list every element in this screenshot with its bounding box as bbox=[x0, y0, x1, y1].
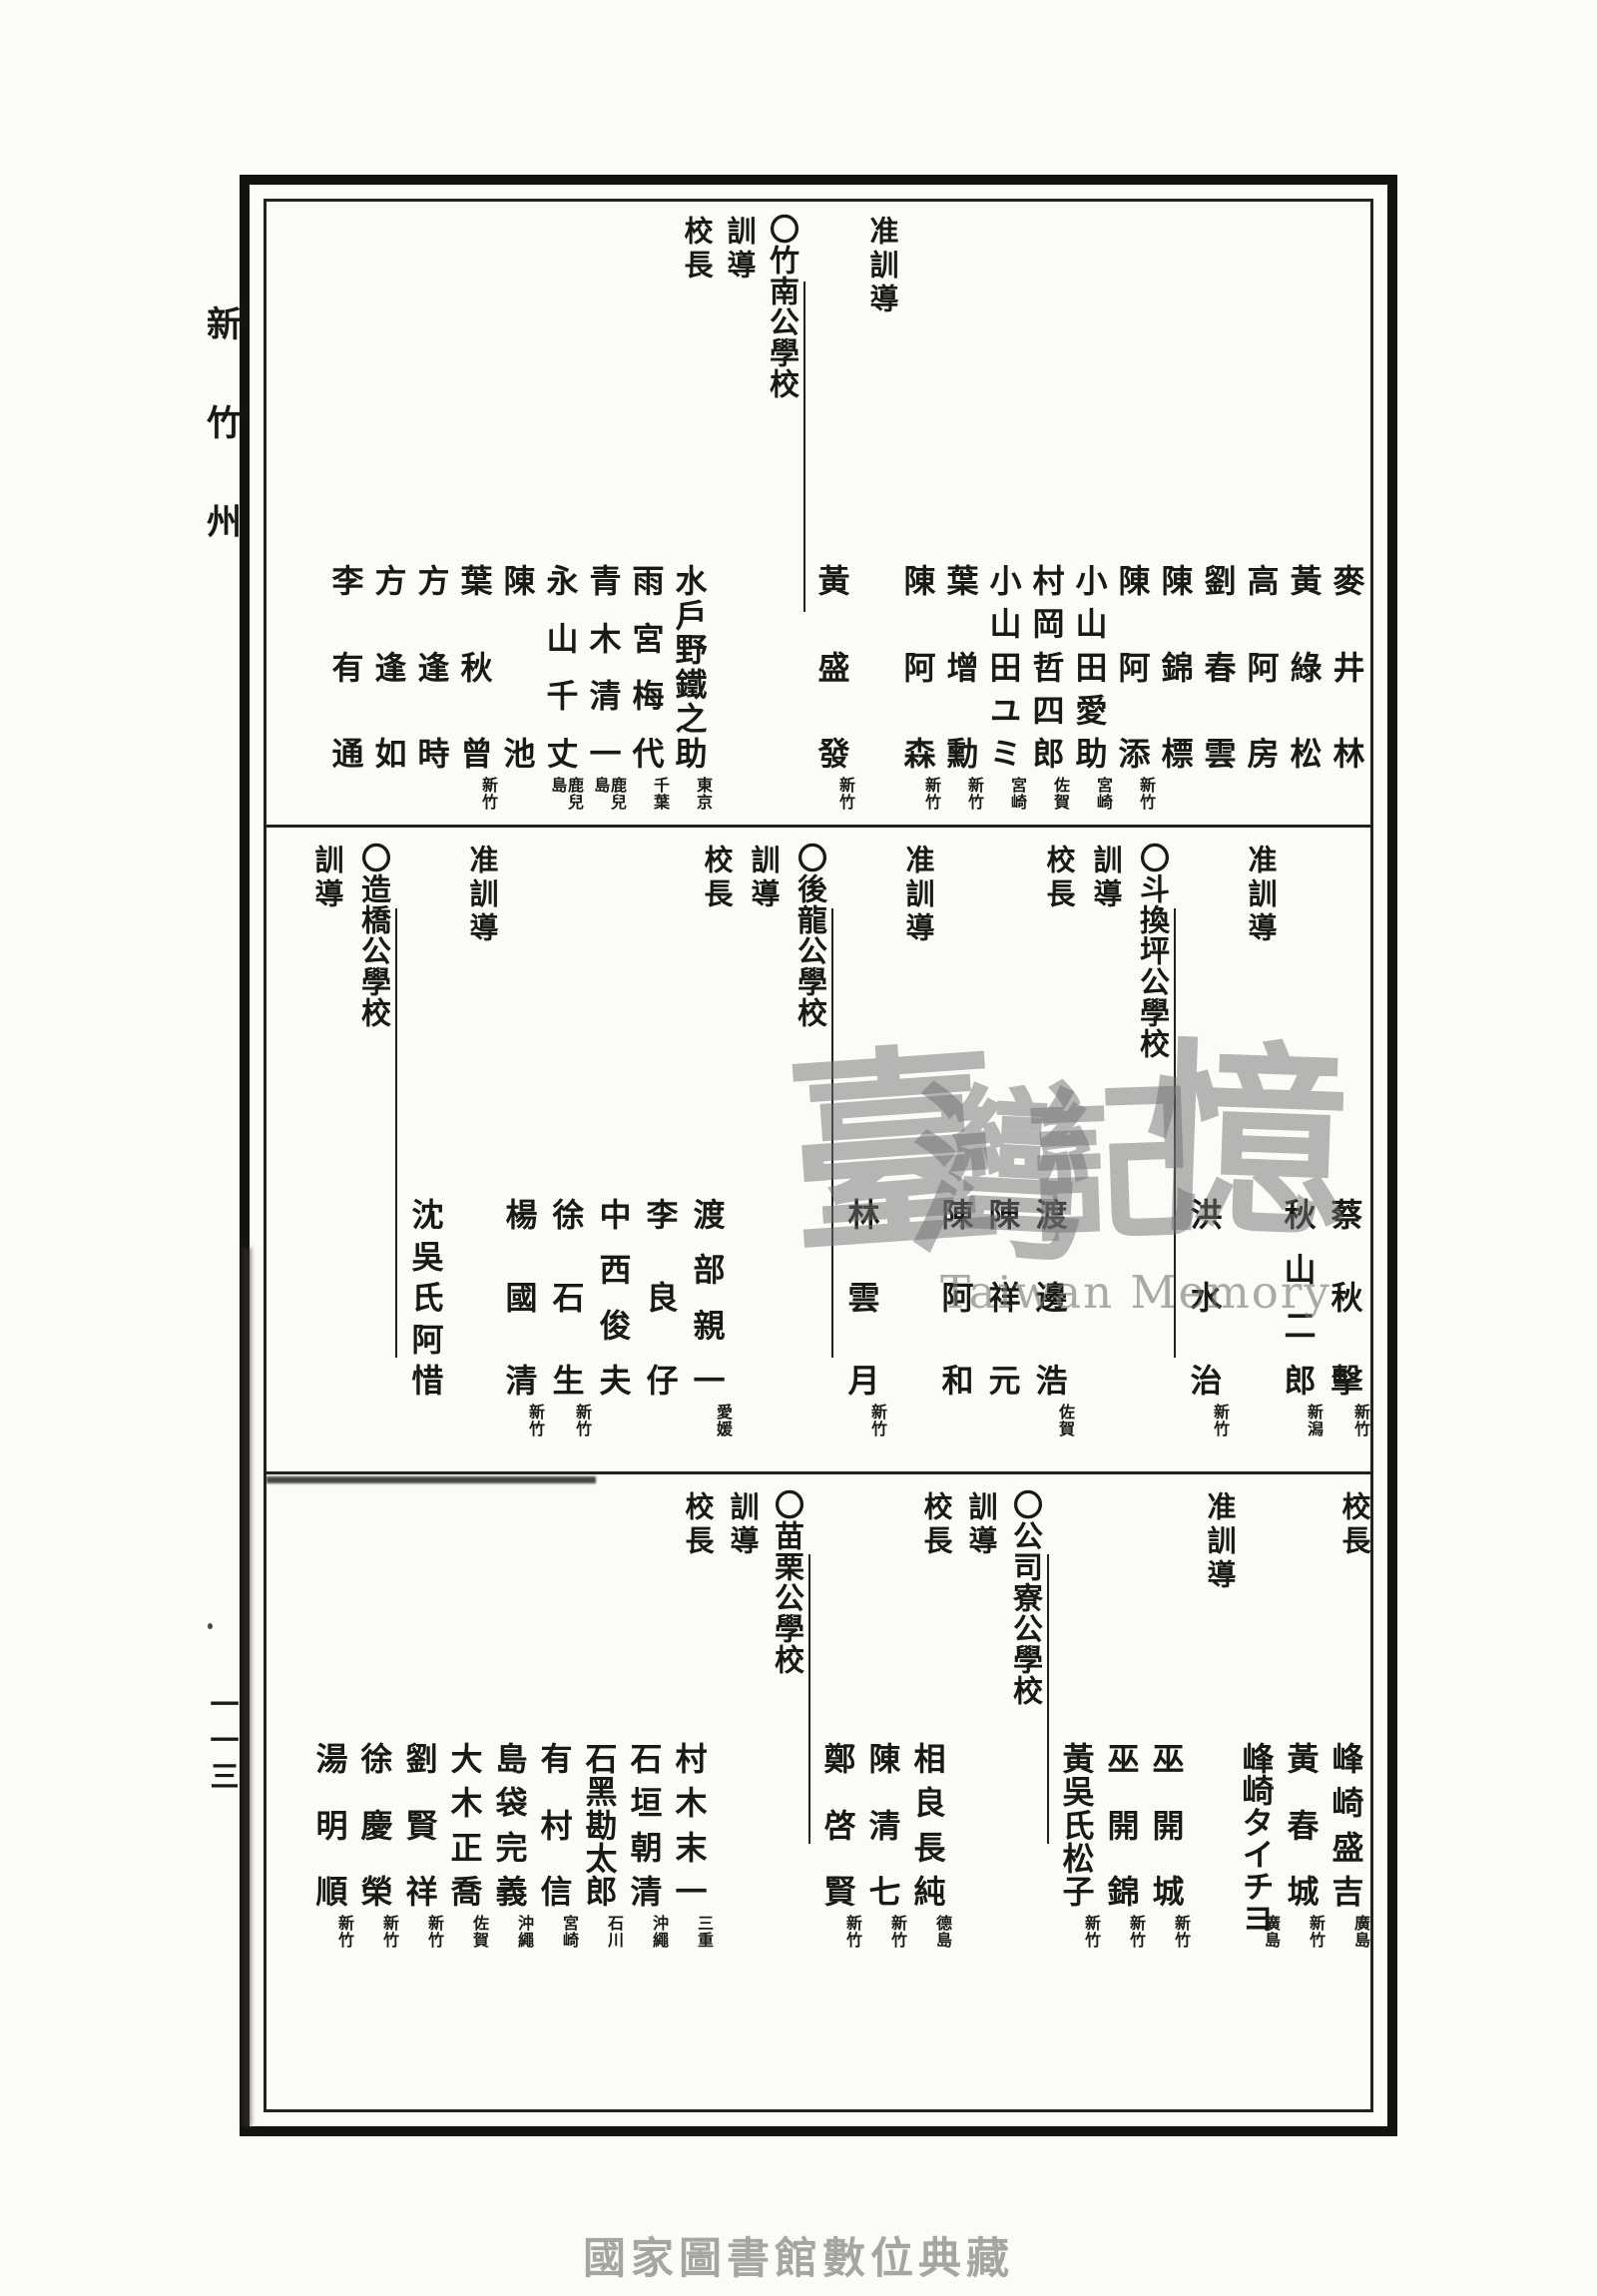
person-name: 方逢時 bbox=[410, 564, 453, 769]
person-column: 中西俊夫 bbox=[590, 831, 637, 1467]
role-heading: 訓導 bbox=[711, 202, 754, 821]
person-column: 陳阿添新竹 bbox=[1111, 202, 1154, 821]
person-name: 楊國清 bbox=[496, 1198, 543, 1396]
principal-column: 校長峰崎盛吉廣島 bbox=[1324, 1477, 1368, 2108]
role-heading: 訓導 bbox=[731, 831, 778, 1467]
person-name: 陳清七 bbox=[860, 1742, 905, 1907]
origin-annotation: 新竹 bbox=[496, 1404, 543, 1437]
person-name: 小山田愛助 bbox=[1068, 564, 1111, 769]
person-name: 村岡哲四郎 bbox=[1025, 564, 1068, 769]
role-heading: 訓導 bbox=[950, 1477, 995, 2108]
origin-annotation: 廣島 bbox=[1324, 1915, 1368, 1949]
person-column: 石垣朝清沖繩 bbox=[622, 1477, 667, 2108]
person-name: 湯明順 bbox=[307, 1742, 352, 1907]
person-column: 麥井林 bbox=[1326, 202, 1368, 821]
person-name: 劉春雲 bbox=[1197, 564, 1240, 769]
person-name: 鄭啓賢 bbox=[815, 1742, 860, 1907]
table-row-top: 麥井林黃綠松高阿房劉春雲陳錦標陳阿添新竹小山田愛助宮崎村岡哲四郎佐賀小山田ユミ宮… bbox=[266, 202, 1368, 821]
person-name: 巫開錦 bbox=[1099, 1742, 1144, 1907]
origin-annotation: 新竹 bbox=[815, 1915, 860, 1949]
entry-separator-line bbox=[801, 1477, 815, 2108]
origin-annotation: 鹿兒島 bbox=[582, 777, 625, 821]
person-column: 鄭啓賢新竹 bbox=[815, 1477, 860, 2108]
school-column: 〇造橋公學校 bbox=[341, 831, 388, 1467]
role-heading-label: 訓導 bbox=[728, 1477, 757, 2108]
role-heading-label: 訓導 bbox=[749, 831, 778, 1467]
origin-annotation: 東京 bbox=[668, 777, 711, 811]
person-column: 島袋完義沖繩 bbox=[487, 1477, 532, 2108]
person-column: 黃春城新竹 bbox=[1279, 1477, 1324, 2108]
person-column: 小山田愛助宮崎 bbox=[1068, 202, 1111, 821]
person-column: 大木正喬佐賀 bbox=[442, 1477, 487, 2108]
person-name: 峰崎盛吉 bbox=[1324, 1742, 1368, 1907]
origin-annotation: 新竹 bbox=[307, 1915, 352, 1949]
origin-annotation: 新潟 bbox=[1275, 1404, 1322, 1437]
person-name: 永山千丈 bbox=[539, 564, 582, 769]
school-column: 〇竹南公學校 bbox=[754, 202, 797, 821]
origin-annotation: 宮崎 bbox=[532, 1915, 577, 1949]
person-name: 雨宮梅代 bbox=[625, 564, 668, 769]
entry-separator-line bbox=[797, 202, 810, 821]
origin-annotation: 新竹 bbox=[1322, 1404, 1368, 1437]
person-name: 黃盛發 bbox=[810, 564, 853, 769]
person-column: 陳阿森新竹 bbox=[896, 202, 939, 821]
entry-separator-line bbox=[388, 831, 402, 1467]
role-heading: 准訓導 bbox=[449, 831, 496, 1467]
person-name: 陳阿森 bbox=[896, 564, 939, 769]
origin-annotation: 德島 bbox=[905, 1915, 950, 1949]
scanned-directory-page: 新竹州 一一三 麥井林黃綠松高阿房劉春雲陳錦標陳阿添新竹小山田愛助宮崎村岡哲四郎… bbox=[0, 0, 1597, 2296]
origin-annotation: 新竹 bbox=[1099, 1915, 1144, 1949]
origin-annotation: 千葉 bbox=[625, 777, 668, 811]
row-divider-2 bbox=[266, 1471, 1370, 1474]
person-name: 徐石生 bbox=[543, 1198, 590, 1396]
entry-separator-line bbox=[1040, 1477, 1054, 2108]
margin-label-prefecture: 新竹州 bbox=[196, 305, 247, 602]
origin-annotation: 新竹 bbox=[1054, 1915, 1099, 1949]
role-heading: 訓導 bbox=[712, 1477, 757, 2108]
person-column: 小山田ユミ宮崎 bbox=[982, 202, 1025, 821]
person-column: 高阿房 bbox=[1240, 202, 1283, 821]
person-column: 李良仔 bbox=[637, 831, 684, 1467]
origin-annotation: 廣島 bbox=[1234, 1915, 1279, 1949]
school-column: 〇公司寮公學校 bbox=[995, 1477, 1040, 2108]
role-heading-label: 准訓導 bbox=[1205, 1477, 1234, 2108]
origin-annotation: 新竹 bbox=[1279, 1915, 1324, 1949]
origin-annotation: 新竹 bbox=[860, 1915, 905, 1949]
origin-annotation: 佐賀 bbox=[1026, 1404, 1073, 1437]
origin-annotation: 愛媛 bbox=[684, 1404, 731, 1437]
watermark-cjk-char: 憶 bbox=[1143, 1037, 1353, 1248]
role-heading: 准訓導 bbox=[853, 202, 896, 821]
origin-annotation: 新竹 bbox=[939, 777, 982, 811]
person-name: 劉賢祥 bbox=[397, 1742, 442, 1907]
role-heading-label: 訓導 bbox=[725, 202, 754, 821]
person-name: 水戶野鐵之助 bbox=[668, 564, 711, 769]
origin-annotation: 新竹 bbox=[810, 777, 853, 811]
person-column: 有村信宮崎 bbox=[532, 1477, 577, 2108]
person-name: 麥井林 bbox=[1326, 564, 1368, 769]
school-name: 〇苗栗公學校 bbox=[770, 1477, 801, 2108]
origin-annotation: 宮崎 bbox=[1068, 777, 1111, 811]
person-column: 沈吳氏阿惜 bbox=[402, 831, 449, 1467]
person-column: 黃盛發新竹 bbox=[810, 202, 853, 821]
person-name: 黃春城 bbox=[1279, 1742, 1324, 1907]
school-name: 〇公司寮公學校 bbox=[1008, 1477, 1040, 2108]
origin-annotation: 新竹 bbox=[352, 1915, 397, 1949]
school-name: 〇竹南公學校 bbox=[765, 202, 797, 821]
page-number: 一一三 bbox=[202, 1689, 244, 1797]
principal-column: 校長水戶野鐵之助東京 bbox=[668, 202, 711, 821]
person-column: 劉春雲 bbox=[1197, 202, 1240, 821]
person-column: 劉賢祥新竹 bbox=[397, 1477, 442, 2108]
origin-annotation: 宮崎 bbox=[982, 777, 1025, 811]
separator-rule bbox=[395, 908, 397, 1358]
person-column: 村岡哲四郎佐賀 bbox=[1025, 202, 1068, 821]
person-name: 陳錦標 bbox=[1154, 564, 1197, 769]
person-name: 徐慶榮 bbox=[352, 1742, 397, 1907]
person-name: 方逢如 bbox=[367, 564, 410, 769]
school-name: 〇造橋公學校 bbox=[356, 831, 388, 1467]
person-column: 峰崎タイチヨ廣島 bbox=[1234, 1477, 1279, 2108]
role-heading-label: 准訓導 bbox=[467, 831, 496, 1467]
origin-annotation: 新竹 bbox=[838, 1404, 885, 1437]
origin-annotation: 新竹 bbox=[1181, 1404, 1228, 1437]
person-column: 巫開城新竹 bbox=[1144, 1477, 1189, 2108]
origin-annotation: 沖繩 bbox=[622, 1915, 667, 1949]
person-name: 中西俊夫 bbox=[590, 1198, 637, 1396]
ink-speck bbox=[208, 1623, 213, 1629]
school-column: 〇苗栗公學校 bbox=[757, 1477, 801, 2108]
person-name: 黃綠松 bbox=[1283, 564, 1326, 769]
origin-annotation: 新竹 bbox=[453, 777, 496, 811]
person-column: 葉秋曾新竹 bbox=[453, 202, 496, 821]
person-column: 石黑勘太郎石川 bbox=[577, 1477, 622, 2108]
row-divider-1 bbox=[266, 825, 1370, 828]
person-column: 黃吳氏松子新竹 bbox=[1054, 1477, 1099, 2108]
origin-annotation: 新竹 bbox=[397, 1915, 442, 1949]
person-name: 陳阿添 bbox=[1111, 564, 1154, 769]
person-name: 青木清一 bbox=[582, 564, 625, 769]
table-row-bottom: 校長峰崎盛吉廣島黃春城新竹峰崎タイチヨ廣島准訓導巫開城新竹巫開錦新竹黃吳氏松子新… bbox=[266, 1477, 1368, 2108]
role-heading-label: 訓導 bbox=[312, 831, 341, 1467]
person-name: 葉秋曾 bbox=[453, 564, 496, 769]
person-column: 陳清七新竹 bbox=[860, 1477, 905, 2108]
person-name: 石黑勘太郎 bbox=[577, 1742, 622, 1907]
role-heading-label: 訓導 bbox=[966, 1477, 995, 2108]
principal-column: 校長相良長純德島 bbox=[905, 1477, 950, 2108]
person-name: 巫開城 bbox=[1144, 1742, 1189, 1907]
person-column: 永山千丈鹿兒島 bbox=[539, 202, 582, 821]
person-name: 相良長純 bbox=[905, 1742, 950, 1907]
role-heading-label: 准訓導 bbox=[867, 202, 896, 821]
person-column: 青木清一鹿兒島 bbox=[582, 202, 625, 821]
person-column: 陳錦標 bbox=[1154, 202, 1197, 821]
person-column: 方逢如 bbox=[367, 202, 410, 821]
separator-rule bbox=[1047, 1554, 1049, 1844]
person-name: 峰崎タイチヨ bbox=[1234, 1742, 1279, 1907]
person-name: 有村信 bbox=[532, 1742, 577, 1907]
separator-rule bbox=[803, 282, 805, 612]
person-column: 巫開錦新竹 bbox=[1099, 1477, 1144, 2108]
origin-annotation: 新竹 bbox=[1111, 777, 1154, 811]
person-name: 小山田ユミ bbox=[982, 564, 1025, 769]
person-column: 葉增勳新竹 bbox=[939, 202, 982, 821]
origin-annotation: 佐賀 bbox=[1025, 777, 1068, 811]
origin-annotation: 鹿兒島 bbox=[539, 777, 582, 821]
left-border-smudge bbox=[243, 1248, 252, 2126]
person-name: 島袋完義 bbox=[487, 1742, 532, 1907]
origin-annotation: 沖繩 bbox=[487, 1915, 532, 1949]
role-heading: 准訓導 bbox=[1189, 1477, 1234, 2108]
person-column: 陳池 bbox=[496, 202, 539, 821]
origin-annotation: 三重 bbox=[667, 1915, 712, 1949]
person-column: 徐石生新竹 bbox=[543, 831, 590, 1467]
person-name: 沈吳氏阿惜 bbox=[402, 1198, 449, 1396]
origin-annotation: 新竹 bbox=[1144, 1915, 1189, 1949]
person-name: 李有通 bbox=[324, 564, 367, 769]
person-column: 湯明順新竹 bbox=[307, 1477, 352, 2108]
person-name: 大木正喬 bbox=[442, 1742, 487, 1907]
person-column: 徐慶榮新竹 bbox=[352, 1477, 397, 2108]
person-name: 村木末一 bbox=[667, 1742, 712, 1907]
footer-caption: 國家圖書館數位典藏 bbox=[0, 2224, 1597, 2286]
origin-annotation: 新竹 bbox=[896, 777, 939, 811]
person-column: 李有通 bbox=[324, 202, 367, 821]
person-name: 石垣朝清 bbox=[622, 1742, 667, 1907]
person-name: 黃吳氏松子 bbox=[1054, 1742, 1099, 1907]
person-column: 楊國清新竹 bbox=[496, 831, 543, 1467]
person-name: 渡部親一 bbox=[684, 1198, 731, 1396]
person-name: 高阿房 bbox=[1240, 564, 1283, 769]
person-name: 陳池 bbox=[496, 564, 539, 769]
principal-column: 校長村木末一三重 bbox=[667, 1477, 712, 2108]
origin-annotation: 新竹 bbox=[543, 1404, 590, 1437]
role-heading: 訓導 bbox=[294, 831, 341, 1467]
person-name: 葉增勳 bbox=[939, 564, 982, 769]
person-name: 李良仔 bbox=[637, 1198, 684, 1396]
person-column: 雨宮梅代千葉 bbox=[625, 202, 668, 821]
principal-column: 校長渡部親一愛媛 bbox=[684, 831, 731, 1467]
origin-annotation: 佐賀 bbox=[442, 1915, 487, 1949]
origin-annotation: 石川 bbox=[577, 1915, 622, 1949]
person-column: 黃綠松 bbox=[1283, 202, 1326, 821]
person-column: 方逢時 bbox=[410, 202, 453, 821]
separator-rule bbox=[808, 1554, 810, 1844]
watermark-latin: Taiwan Memory bbox=[940, 1266, 1331, 1319]
